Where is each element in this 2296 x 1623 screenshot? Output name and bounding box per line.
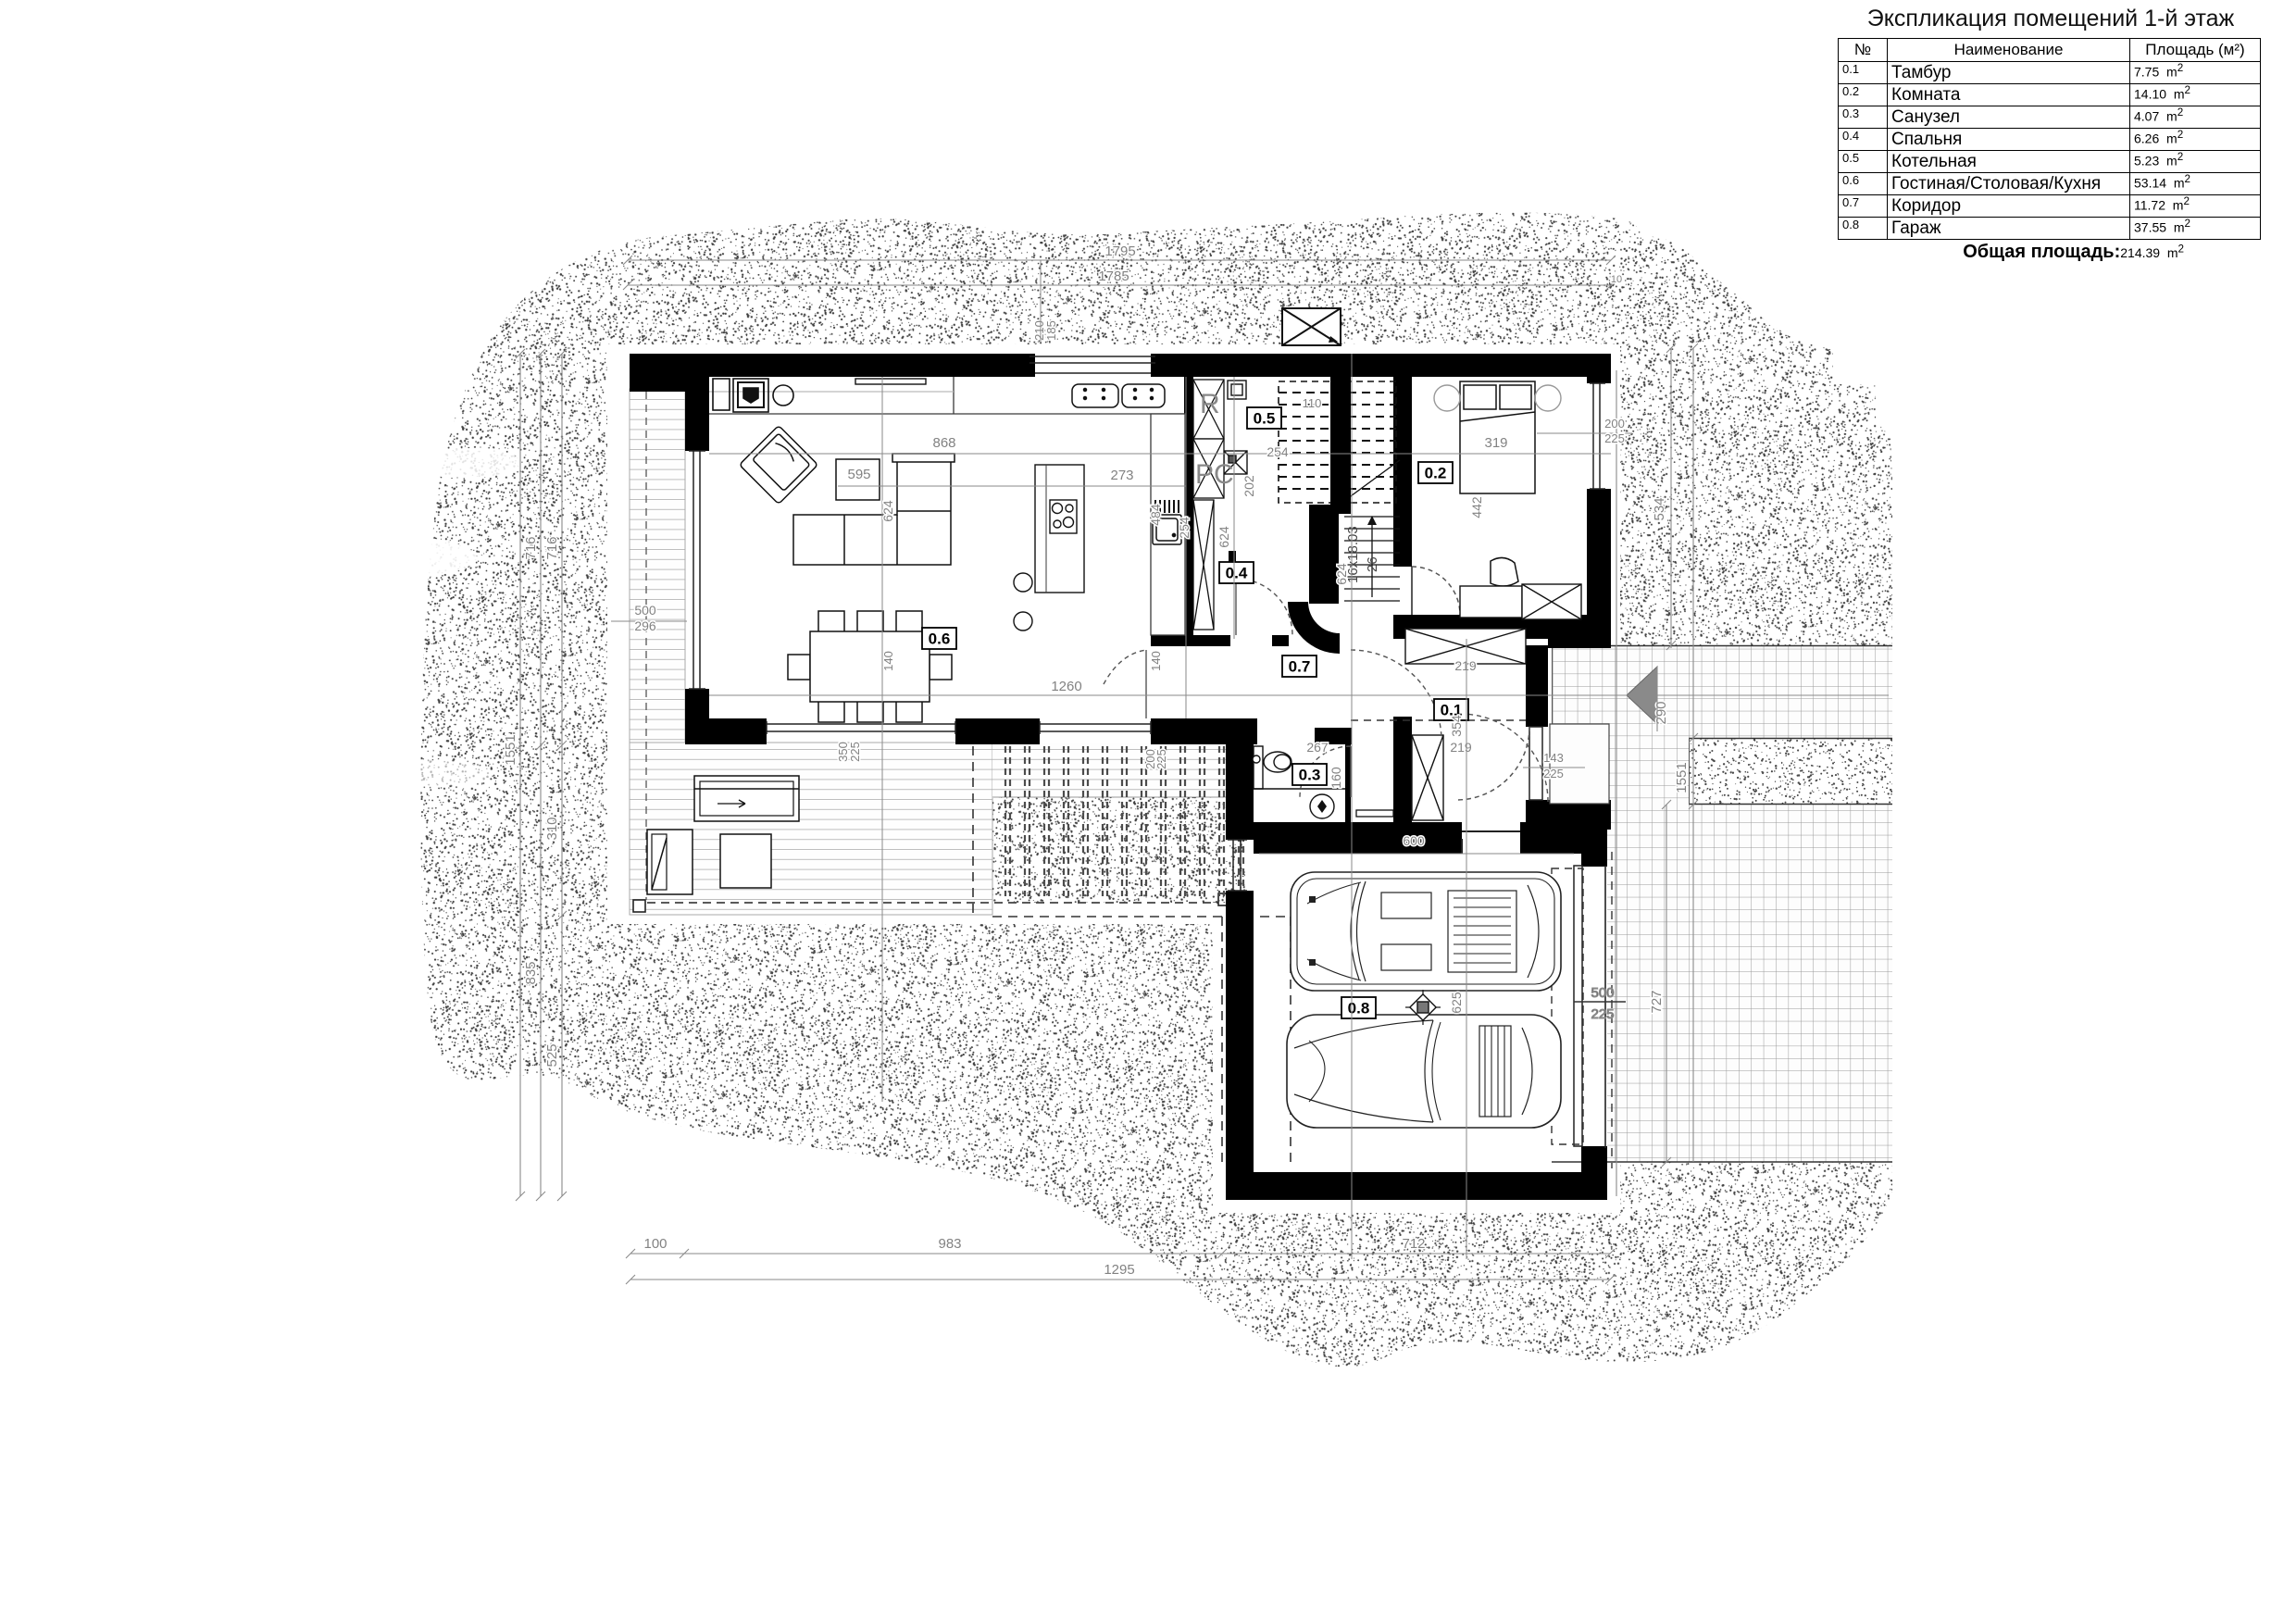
svg-text:1295: 1295 — [1104, 1262, 1134, 1278]
svg-text:525: 525 — [544, 1043, 560, 1067]
svg-text:267: 267 — [1306, 740, 1329, 755]
svg-text:225: 225 — [1154, 749, 1168, 769]
svg-text:200: 200 — [1604, 417, 1625, 431]
svg-text:140: 140 — [1149, 651, 1163, 671]
svg-text:1795: 1795 — [1104, 243, 1135, 259]
svg-text:219: 219 — [1450, 740, 1472, 755]
svg-text:835: 835 — [523, 961, 539, 984]
svg-text:0.7: 0.7 — [1289, 658, 1311, 676]
svg-text:PC: PC — [1195, 459, 1234, 490]
svg-text:595: 595 — [847, 467, 870, 482]
svg-text:R: R — [1200, 389, 1220, 419]
svg-text:716: 716 — [544, 536, 560, 559]
svg-text:716: 716 — [523, 536, 539, 559]
svg-text:273: 273 — [1110, 468, 1133, 483]
svg-text:442: 442 — [1469, 496, 1484, 518]
svg-text:727: 727 — [1649, 990, 1665, 1013]
svg-text:319: 319 — [1484, 435, 1507, 451]
svg-text:10: 10 — [1611, 274, 1622, 285]
svg-text:0.6: 0.6 — [929, 630, 951, 648]
svg-text:484: 484 — [1148, 504, 1163, 526]
svg-text:254: 254 — [1177, 517, 1192, 539]
svg-text:296: 296 — [634, 618, 656, 633]
svg-text:219: 219 — [1454, 658, 1477, 673]
svg-text:624: 624 — [1217, 526, 1231, 548]
svg-text:500: 500 — [1591, 985, 1614, 1001]
svg-text:140: 140 — [881, 651, 895, 671]
svg-text:625: 625 — [1449, 992, 1464, 1014]
svg-text:534: 534 — [1652, 497, 1667, 520]
svg-text:0.5: 0.5 — [1254, 410, 1276, 428]
svg-text:225: 225 — [1543, 767, 1564, 780]
svg-text:185: 185 — [1044, 320, 1058, 341]
svg-text:600: 600 — [1403, 833, 1425, 848]
svg-text:225: 225 — [1604, 431, 1625, 445]
svg-text:26: 26 — [1365, 556, 1380, 572]
svg-text:290: 290 — [1653, 701, 1669, 724]
svg-text:354: 354 — [1449, 715, 1464, 737]
svg-text:1260: 1260 — [1051, 679, 1081, 694]
svg-text:712: 712 — [1402, 1236, 1425, 1252]
svg-text:624: 624 — [880, 500, 895, 522]
svg-text:310: 310 — [544, 817, 560, 840]
svg-text:225: 225 — [848, 742, 862, 762]
svg-text:0.8: 0.8 — [1348, 1000, 1370, 1017]
svg-text:225: 225 — [1591, 1006, 1614, 1022]
svg-text:160: 160 — [1329, 767, 1343, 789]
svg-text:0.4: 0.4 — [1226, 565, 1248, 582]
svg-text:1551: 1551 — [503, 734, 518, 765]
svg-text:110: 110 — [1303, 396, 1322, 410]
svg-text:500: 500 — [634, 603, 656, 618]
svg-text:202: 202 — [1242, 475, 1256, 497]
svg-text:1551: 1551 — [1674, 762, 1690, 793]
svg-text:983: 983 — [938, 1236, 961, 1252]
svg-text:100: 100 — [643, 1236, 667, 1252]
svg-text:254: 254 — [1267, 444, 1289, 459]
svg-text:143: 143 — [1543, 751, 1564, 765]
svg-text:1785: 1785 — [1098, 268, 1129, 284]
svg-text:624: 624 — [1334, 563, 1349, 585]
svg-text:0.2: 0.2 — [1425, 465, 1447, 482]
svg-text:0.3: 0.3 — [1299, 767, 1321, 784]
svg-text:868: 868 — [932, 435, 955, 451]
